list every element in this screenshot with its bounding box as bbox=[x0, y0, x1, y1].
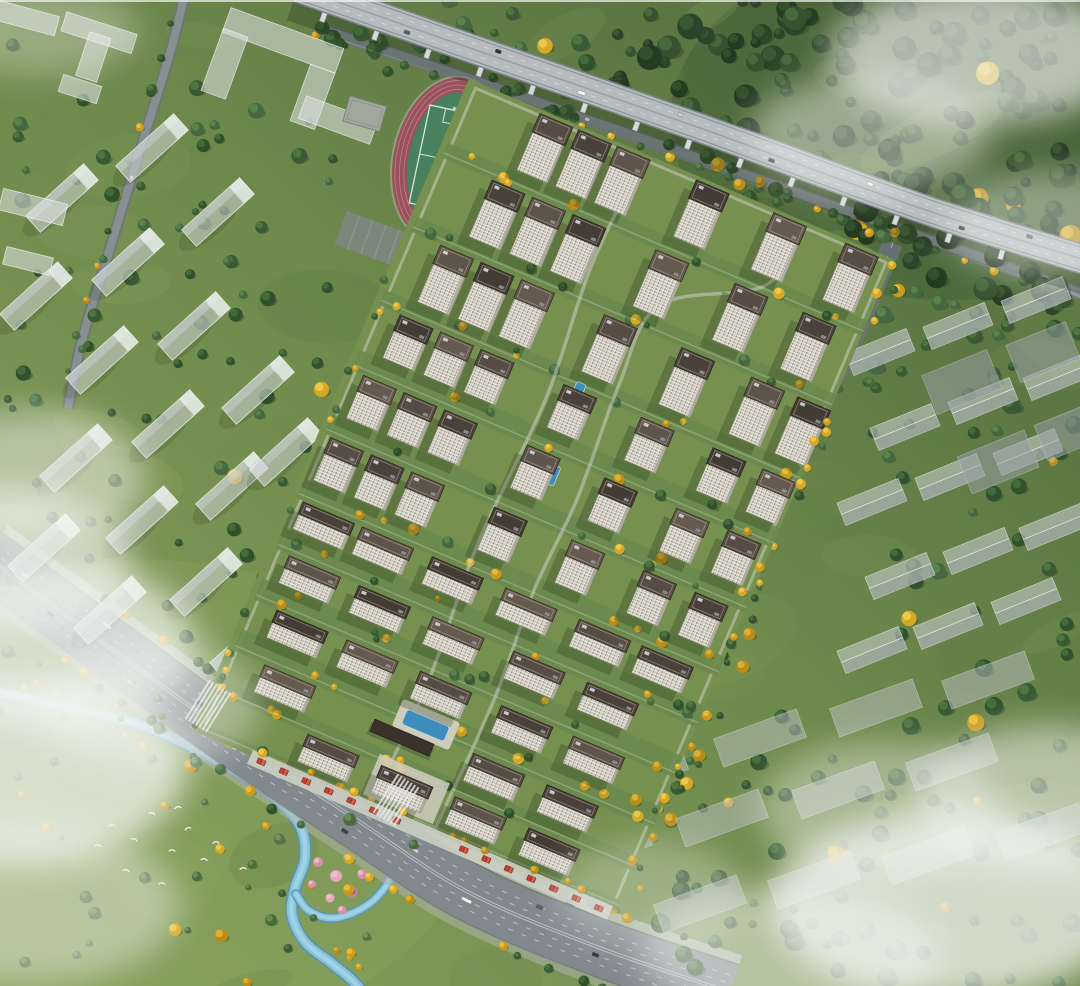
blossom-tree bbox=[313, 857, 323, 867]
blossom-tree bbox=[330, 870, 342, 882]
image-edge-line bbox=[0, 0, 1080, 2]
mist-patch bbox=[750, 75, 990, 195]
mist-patch bbox=[555, 840, 745, 950]
aerial-masterplan-image bbox=[0, 0, 1080, 986]
blossom-tree bbox=[308, 880, 316, 888]
mist-patch bbox=[760, 740, 1000, 880]
blossom-tree bbox=[338, 906, 347, 915]
scene-svg bbox=[0, 0, 1080, 986]
blossom-tree bbox=[326, 894, 335, 903]
mist-patch bbox=[40, 640, 260, 770]
